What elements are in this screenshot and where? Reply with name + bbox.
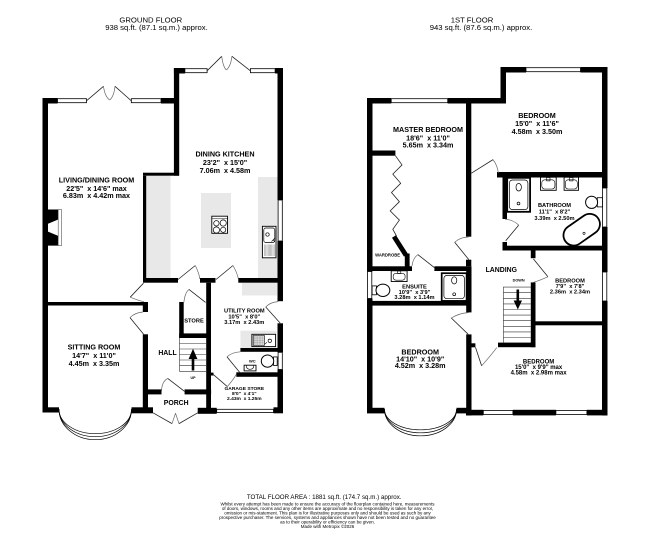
svg-text:PORCH: PORCH [164,400,189,407]
svg-text:2.36m x 2.34m: 2.36m x 2.34m [550,290,590,296]
svg-text:BATHROOM: BATHROOM [538,203,571,209]
svg-text:8'0" x 4'1": 8'0" x 4'1" [232,391,257,397]
svg-text:STORE: STORE [184,318,204,324]
svg-text:HALL: HALL [158,350,176,357]
svg-text:TOTAL FLOOR AREA : 1881 sq.ft.: TOTAL FLOOR AREA : 1881 sq.ft. (174.7 sq… [247,494,402,501]
svg-text:6.83m x 4.42m max: 6.83m x 4.42m max [63,191,130,200]
svg-text:2.43m x 1.25m: 2.43m x 1.25m [227,396,262,402]
svg-text:943 sq.ft. (87.6 sq.m.) approx: 943 sq.ft. (87.6 sq.m.) approx. [430,23,533,32]
svg-text:4.58m x 2.98m max: 4.58m x 2.98m max [511,371,568,377]
svg-text:LANDING: LANDING [486,267,517,274]
svg-text:WARDROBE: WARDROBE [375,253,400,258]
svg-text:UP: UP [191,376,197,380]
svg-text:3.17m x 2.43m: 3.17m x 2.43m [224,320,264,326]
svg-text:DOWN: DOWN [513,279,525,283]
svg-text:5.65m x 3.34m: 5.65m x 3.34m [403,141,454,150]
svg-text:4.58m x 3.50m: 4.58m x 3.50m [512,127,563,136]
svg-text:3.39m x 2.50m: 3.39m x 2.50m [534,216,574,222]
svg-text:7.06m x 4.58m: 7.06m x 4.58m [200,166,251,175]
svg-text:Made with Metropix ©2026: Made with Metropix ©2026 [301,523,355,529]
svg-text:4.45m x 3.35m: 4.45m x 3.35m [69,359,120,368]
svg-text:3.28m x 1.14m: 3.28m x 1.14m [394,295,434,301]
svg-text:GARAGE STORE: GARAGE STORE [225,386,265,392]
svg-text:11'1" x 8'2": 11'1" x 8'2" [539,209,571,215]
svg-text:WC: WC [249,359,256,364]
svg-text:938 sq.ft. (87.1 sq.m.) approx: 938 sq.ft. (87.1 sq.m.) approx. [105,23,208,32]
svg-text:4.52m x 3.28m: 4.52m x 3.28m [395,361,446,370]
